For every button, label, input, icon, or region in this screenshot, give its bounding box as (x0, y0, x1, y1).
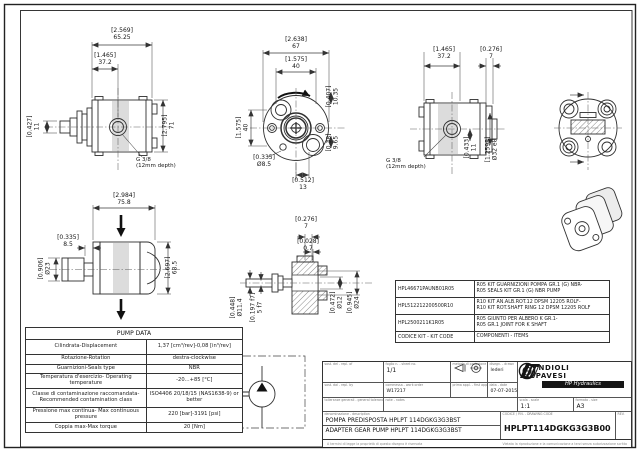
dim-v1-port-position: [1.465]37.2 (83, 53, 127, 66)
table-row: Rotazione-Rotation destra-clockwise (26, 355, 242, 365)
field-description-english: ADAPTER GEAR PUMP HPLPT 114DGKG3G3BST (323, 426, 501, 439)
dim-v2-bolt-spacing-h: [1.575]40 (274, 57, 318, 70)
pump-data-table: PUMP DATA Cilindrata-Displacement 1,37 [… (25, 327, 243, 433)
field-sheet: foglio n. - sheet no. 1/1 (384, 362, 451, 383)
dim-v6-shaft-diameter: [0.448]Ø11.4 (231, 291, 244, 325)
dim-v1-overall-width: [2.569]65.25 (98, 28, 146, 41)
dim-v3-spigot: [0.276]7 (475, 47, 507, 60)
dim-v3-pilot-diameter: [1.2598]Ø32 e8 (486, 130, 499, 170)
field-notes: note - notes (384, 398, 518, 412)
dim-v5-8-5: [0.335]8.5 (50, 235, 86, 248)
first-angle-projection-icon (451, 362, 485, 374)
field-revision: REV. (616, 412, 631, 439)
table-row: HPL512212200500R10 R10 KIT AN.ALB.ROT.12… (396, 298, 609, 315)
dim-v1-shaft: [0.427]11 (28, 110, 41, 144)
dim-v2-offset-13: [0.512]13 (287, 178, 319, 191)
view-side-horizontal (48, 205, 180, 320)
dim-v1-height: [2.795]71 (163, 109, 176, 143)
table-row: HPL46671PAUNB01R05 R05 KIT GUARNIZIONI P… (396, 281, 609, 298)
field-size: formato - size A3 (574, 398, 631, 412)
table-row: Classe di contaminazione raccomandata- R… (26, 389, 242, 408)
dim-v5-height: [2.697]68.5 (166, 251, 179, 285)
port-note-right: G 3/8(12mm depth) (386, 158, 426, 170)
legal-footer-right: Vietata la riproduzione e la comunicazio… (502, 442, 627, 446)
kit-code-table: HPL46671PAUNB01R05 R05 KIT GUARNIZIONI P… (395, 280, 610, 343)
field-replaced-by: sost. dal - repl. by (323, 383, 384, 398)
field-drawn-by: disegn. - drawn lederi (488, 362, 518, 383)
dim-v3-11: [0.433]11 (465, 131, 478, 165)
view-rear-nameplate (554, 92, 622, 170)
hp-hydraulics-emblem-icon (518, 362, 536, 380)
field-description-italian: denominazione - description POMPA PREDIS… (323, 412, 501, 426)
table-footer-row: CODICE KIT - KIT CODE COMPONENTI - ITEMS (396, 332, 609, 342)
dim-v2-hole-diameter: [0.335]Ø8.5 (246, 155, 282, 168)
dim-v2-bolt-spacing-v: [1.575]40 (237, 111, 250, 145)
dim-v5-length: [2.984]75.8 (102, 193, 146, 206)
technical-drawing-page: [2.569]65.25 [1.465]37.2 [0.427]11 [2.79… (0, 0, 640, 452)
company-logo-block: BONDIOLI & PAVESI HP Hydraulics (518, 362, 631, 398)
dim-v6-d24: [0.945]Ø24 (348, 286, 361, 320)
company-banner: HP Hydraulics (542, 381, 624, 388)
field-scale: scala - scale 1:1 (518, 398, 574, 412)
dim-v2-offset-top: [0.407]10.35 (327, 80, 340, 114)
dim-v6-key: [0.197 f7]5 f7 (251, 291, 264, 325)
dim-v6-d12: [0.472]Ø12 (331, 286, 344, 320)
field-projection: metodo di proiezione (451, 362, 488, 383)
pump-data-title: PUMP DATA (26, 328, 242, 340)
port-note-left: G 3/8(12mm depth) (136, 157, 176, 169)
table-row: Coppia max-Max torque 20 [Nm] (26, 423, 242, 433)
field-work-order: commessa - work order W17217 (384, 383, 451, 398)
dim-v6-7: [0.276]7 (291, 217, 321, 230)
title-block: sost. del - repl. of foglio n. - sheet n… (322, 361, 632, 440)
dim-v3-width: [1.465]37.2 (422, 47, 466, 60)
field-drawing-code: CODICE / P.N. - DRAWING CODE HPLPT114DGK… (501, 412, 616, 439)
table-row: Pressione max continua- Max continuous p… (26, 408, 242, 423)
field-first-application: prima appl. - first appl. (451, 383, 488, 398)
table-row: Cilindrata-Displacement 1,37 [cm³/rev]-0… (26, 340, 242, 355)
table-row: Temperatura d'esercizio- Operating tempe… (26, 374, 242, 389)
dim-v6-0-7: [0.028]0.7 (293, 239, 323, 252)
dim-v2-offset-bottom: [0.38]9.65 (327, 126, 340, 160)
field-replaces: sost. del - repl. of (323, 362, 384, 383)
table-row: HPL2500211K1R05 R05 GIUNTO PER ALBERO K … (396, 315, 609, 332)
view-isometric-3d (556, 186, 629, 254)
legal-footer-strip: A termini di legge la proprietà di quest… (322, 440, 632, 447)
pump-symbol-triangle (257, 383, 268, 392)
table-row: Guarnizioni-Seals type NBR (26, 365, 242, 375)
dim-v5-coupling-diameter: [0.906]Ø23 (39, 252, 52, 286)
dim-v2-overall-width: [2.638]67 (272, 37, 320, 50)
field-tolerances: tolleranze generali - general tolerances (323, 398, 384, 412)
field-date: data - date 07-07-2015 (488, 383, 518, 398)
legal-footer-left: A termini di legge la proprietà di quest… (327, 442, 422, 446)
